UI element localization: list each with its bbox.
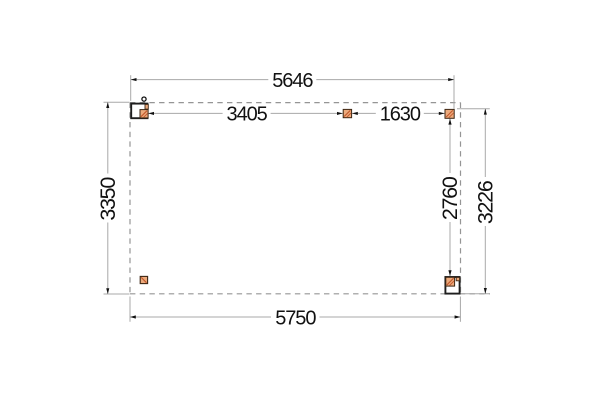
svg-text:3405: 3405 [227, 103, 268, 125]
svg-text:3226: 3226 [474, 180, 498, 224]
svg-text:3350: 3350 [96, 177, 120, 221]
svg-text:5750: 5750 [275, 308, 316, 330]
svg-text:1630: 1630 [380, 103, 421, 125]
svg-text:5646: 5646 [272, 70, 313, 92]
svg-text:2760: 2760 [438, 176, 462, 220]
